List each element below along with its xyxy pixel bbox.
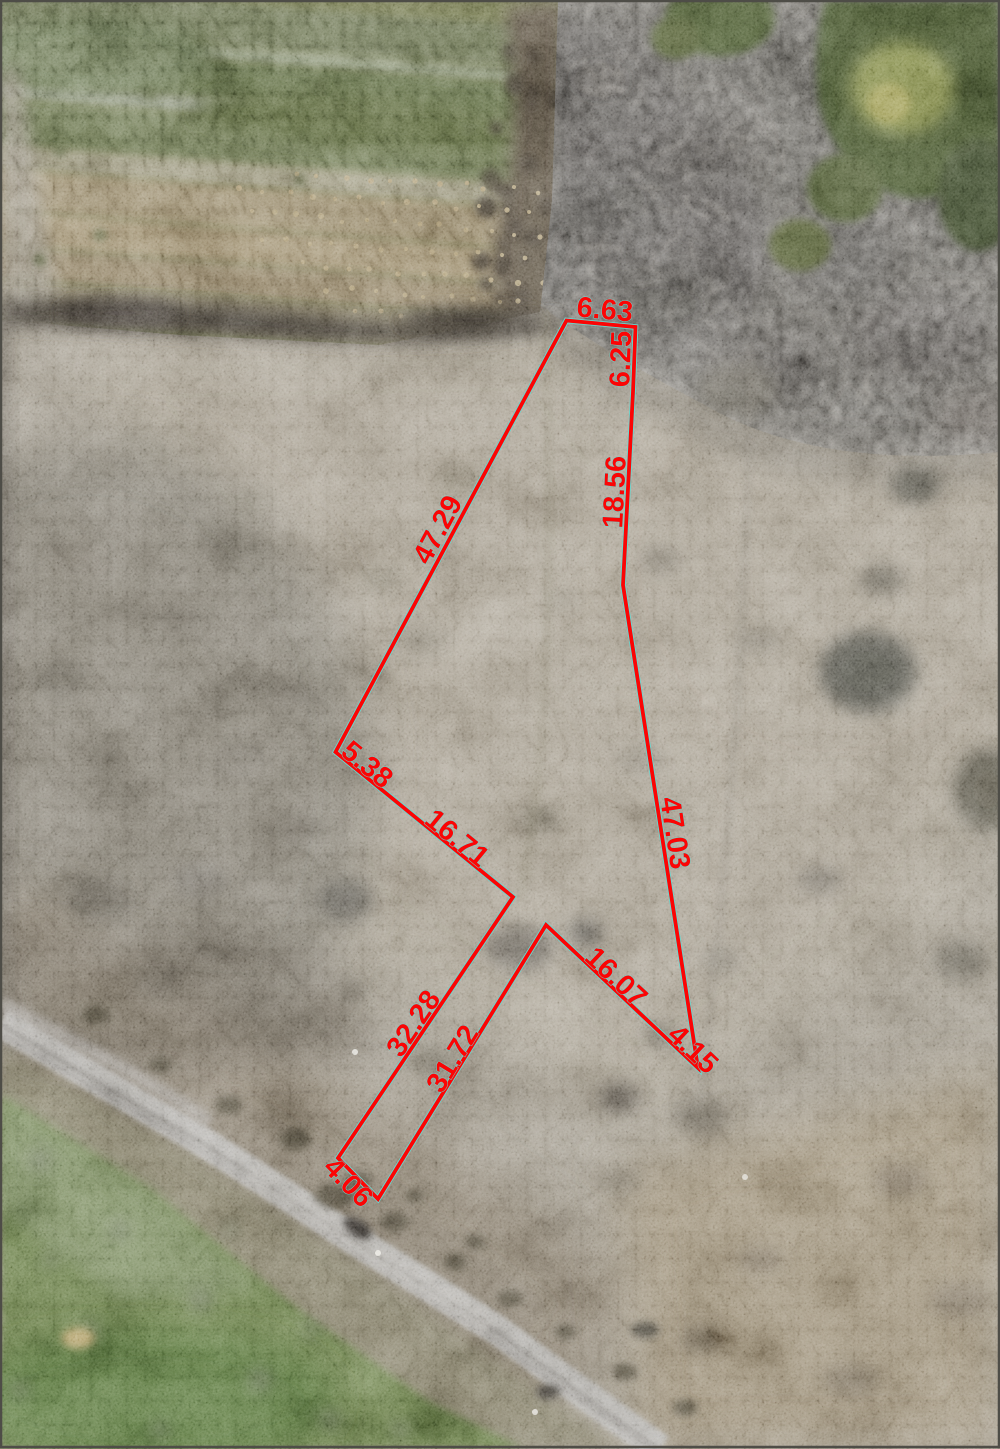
svg-text:6.63: 6.63 (575, 291, 634, 328)
svg-text:6.25: 6.25 (604, 330, 638, 388)
svg-text:18.56: 18.56 (597, 455, 633, 529)
